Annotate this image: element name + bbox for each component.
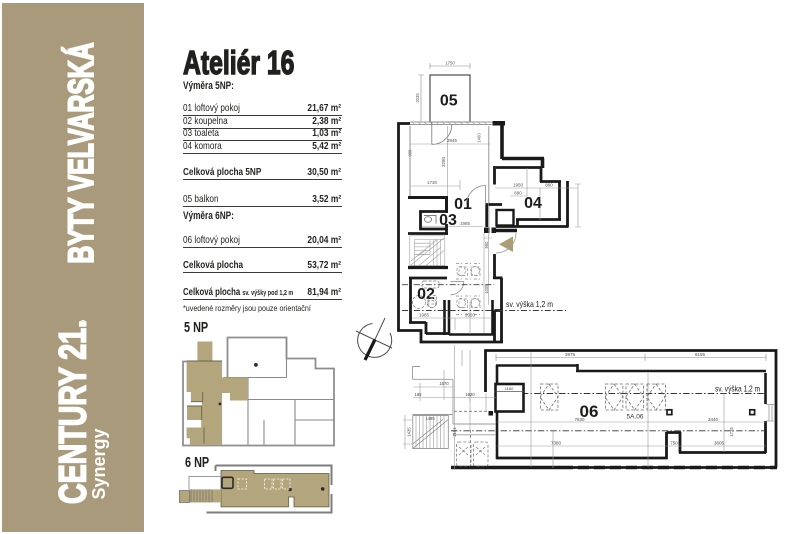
svg-text:3975: 3975	[565, 352, 576, 357]
svg-text:1730: 1730	[427, 180, 438, 185]
svg-text:890: 890	[514, 191, 522, 196]
svg-text:sv. výška 1,2 m: sv. výška 1,2 m	[715, 384, 760, 394]
svg-text:7380: 7380	[551, 441, 562, 446]
svg-text:03: 03	[439, 212, 457, 229]
svg-text:2151: 2151	[452, 427, 457, 437]
svg-text:2035: 2035	[415, 93, 420, 103]
svg-text:06: 06	[580, 402, 599, 421]
svg-text:1005: 1005	[484, 284, 489, 294]
svg-text:3280: 3280	[441, 156, 446, 167]
svg-text:890: 890	[545, 183, 553, 188]
svg-text:3605: 3605	[714, 441, 725, 446]
svg-text:1985: 1985	[419, 313, 430, 318]
svg-text:8155: 8155	[695, 352, 706, 357]
svg-text:5A.06: 5A.06	[627, 414, 644, 421]
svg-text:1985: 1985	[460, 221, 471, 226]
svg-text:sv. výška 1,2 m: sv. výška 1,2 m	[506, 299, 553, 309]
svg-text:1570: 1570	[439, 381, 449, 386]
svg-text:1495: 1495	[425, 416, 435, 421]
svg-text:2020: 2020	[465, 313, 476, 318]
svg-text:01: 01	[454, 196, 472, 213]
svg-text:3945: 3945	[447, 138, 458, 143]
svg-text:1400: 1400	[477, 133, 482, 143]
svg-text:1725: 1725	[729, 427, 734, 437]
svg-text:950: 950	[484, 241, 489, 249]
svg-text:1620: 1620	[465, 392, 475, 397]
svg-text:05: 05	[440, 93, 458, 110]
svg-text:1435: 1435	[407, 427, 412, 437]
svg-text:04: 04	[524, 195, 542, 212]
svg-text:750: 750	[670, 441, 678, 446]
svg-text:1750: 1750	[445, 61, 455, 66]
svg-text:950: 950	[408, 149, 413, 157]
svg-text:1160: 1160	[505, 386, 514, 391]
svg-text:02: 02	[417, 286, 435, 303]
svg-text:1950: 1950	[513, 183, 524, 188]
svg-text:165: 165	[415, 392, 423, 397]
svg-text:3440: 3440	[708, 417, 719, 422]
